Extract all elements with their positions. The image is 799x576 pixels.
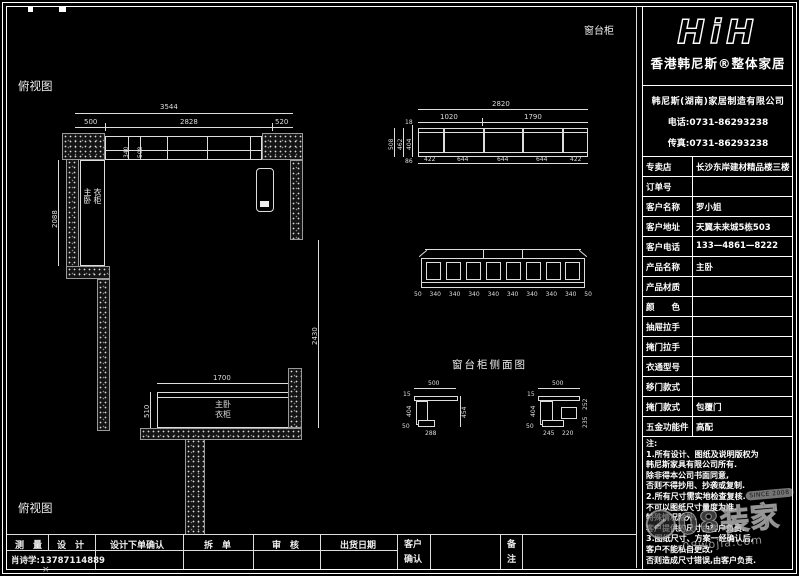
bb-header-design: 设 计: [57, 538, 84, 551]
plan-dim-line-overall: [75, 113, 293, 114]
front-door: [446, 262, 461, 280]
front-dim: 340: [546, 292, 557, 298]
front-cap-divider: [522, 249, 523, 258]
note-line: 除非得本公司书面同意,: [646, 471, 792, 482]
cabinet-divider: [167, 136, 168, 160]
row-value: [693, 337, 793, 356]
row-value: 罗小姐: [693, 197, 793, 216]
front-door: [546, 262, 561, 280]
plan-dim-bottom-w: 1700: [213, 375, 231, 382]
front-dim-row: 50 340 340 340 340 340 340 340 340 50: [414, 292, 592, 298]
note-line: 特殊情况除外.: [646, 513, 792, 524]
row-label: 五金功能件: [643, 417, 693, 436]
front-dim: 340: [565, 292, 576, 298]
row-label: 掩门拉手: [643, 337, 693, 356]
dim-tick: [272, 123, 273, 131]
row-value: [693, 357, 793, 376]
row-value: [693, 317, 793, 336]
wardrobe-bottom-label: 主卧: [215, 401, 231, 409]
plan-dim-mid: 2828: [180, 119, 198, 126]
wall-hatch: [288, 368, 302, 428]
hih-logo: HiH: [677, 12, 759, 51]
row-value: 包覆门: [693, 397, 793, 416]
table-row: 客户电话133—4861—8222: [643, 236, 793, 256]
note-line: 不可以图纸尺寸量度为准.: [646, 503, 792, 514]
dim-tick: [482, 118, 483, 126]
table-row: 掩门款式包覆门: [643, 396, 793, 416]
front-door: [426, 262, 441, 280]
company-phone: 电话:0731-86293238: [643, 107, 793, 128]
note-line: 2.所有尺寸需实地检查复核.: [646, 492, 792, 503]
elev-divider: [443, 128, 445, 153]
sideR-dim-line: [538, 388, 580, 389]
table-row: 衣通型号: [643, 356, 793, 376]
front-dim: 340: [449, 292, 460, 298]
sideR-dim-bottom-b: 220: [562, 431, 573, 437]
table-row: 颜 色: [643, 296, 793, 316]
row-label: 订单号: [643, 177, 693, 196]
row-label: 移门款式: [643, 377, 693, 396]
elev-dim-b4: 422: [570, 157, 581, 163]
bb-divider: [48, 534, 49, 550]
table-row: 五金功能件高配: [643, 416, 793, 436]
title-block: HiH 香港韩尼斯®整体家居 韩尼斯(湖南)家居制造有限公司 电话:0731-8…: [642, 6, 793, 570]
table-row: 专卖店长沙东岸建材精品楼三楼: [643, 156, 793, 176]
sideR-dim-right-b: 235: [583, 417, 589, 428]
wall-hatch: [62, 133, 105, 160]
bb-header-measure: 测 量: [15, 538, 42, 551]
elev-dim-b0: 422: [424, 157, 435, 163]
bb-divider: [253, 534, 254, 569]
bb-divider: [500, 534, 501, 569]
bb-header-audit: 审 核: [272, 538, 299, 551]
bb-header-order-confirm: 设计下单确认: [110, 538, 164, 551]
elev-dim-small-bottom: 86: [405, 159, 413, 165]
row-label: 颜 色: [643, 297, 693, 316]
plan-dim-right: 520: [275, 119, 288, 126]
plan-dim-left: 500: [84, 119, 97, 126]
table-row: 产品名称主卧: [643, 256, 793, 276]
front-door: [486, 262, 501, 280]
order-info-table: 专卖店长沙东岸建材精品楼三楼 订单号 客户名称罗小姐 客户地址天翼未来城5栋50…: [643, 156, 793, 436]
plan-wardrobe-left: [80, 160, 105, 266]
plan-column-mark: [260, 201, 269, 207]
sideL-dim-right: 454: [462, 407, 468, 418]
frame-zone-mark: [59, 6, 66, 12]
front-cap-divider: [483, 249, 484, 258]
row-label: 客户名称: [643, 197, 693, 216]
row-label: 衣通型号: [643, 357, 693, 376]
company-info: 韩尼斯(湖南)家居制造有限公司 电话:0731-86293238 传真:0731…: [643, 85, 793, 156]
plan-dim-wardrobe-h: 2088: [52, 210, 59, 228]
row-label: 产品材质: [643, 277, 693, 296]
logo-area: HiH 香港韩尼斯®整体家居: [643, 6, 793, 85]
row-value: 长沙东岸建材精品楼三楼: [693, 157, 793, 176]
bb-customer-confirm: 确认: [404, 552, 422, 565]
elev-dim-overall: 2820: [492, 101, 510, 108]
side-view-title: 窗台柜侧面图: [452, 357, 527, 372]
company-name: 韩尼斯(湖南)家居制造有限公司: [643, 86, 793, 107]
front-dim: 340: [468, 292, 479, 298]
row-value: 天翼未来城5栋503: [693, 217, 793, 236]
wardrobe-left-label: 衣柜: [93, 188, 101, 204]
sideR-dim-bottom-a: 245: [543, 431, 554, 437]
front-dim: 340: [526, 292, 537, 298]
bb-divider: [183, 534, 184, 569]
elev-dim-b1: 644: [457, 157, 468, 163]
note-line: 否则造成尺寸错误,由客户负责.: [646, 556, 792, 567]
cabinet-divider: [250, 136, 251, 160]
plan-view-title-top: 俯视图: [18, 78, 53, 94]
sideR-dim-right-a: 252: [583, 399, 589, 410]
front-plinth-line: [421, 282, 585, 283]
note-line: 客户不能私自更改,: [646, 545, 792, 556]
wardrobe-bottom-label: 衣柜: [215, 411, 231, 419]
note-line: 注:: [646, 439, 792, 450]
front-dim: 340: [507, 292, 518, 298]
elev-divider: [483, 128, 485, 153]
front-dim: 50: [584, 292, 592, 298]
note-line: 3.图纸尺寸、方案一经确认后,: [646, 534, 792, 545]
sideL-dim-left: 404: [407, 406, 413, 417]
elev-dim-line3: [418, 163, 588, 164]
plan-dim-band-a: 340: [124, 147, 130, 158]
wardrobe-left-label: 主卧: [83, 188, 91, 204]
bb-measure-value: 肖诗学:13787114889: [11, 554, 105, 566]
company-fax: 传真:0731-86293238: [643, 128, 793, 149]
table-row: 客户地址天翼未来城5栋503: [643, 216, 793, 236]
row-label: 客户地址: [643, 217, 693, 236]
bb-customer-confirm: 客户: [404, 537, 422, 550]
sideL-dim-corner: 15: [403, 392, 411, 398]
wall-hatch: [262, 133, 303, 160]
row-value: 主卧: [693, 257, 793, 276]
elev-dim-line: [418, 109, 588, 110]
bottombar-top-line: [7, 534, 636, 535]
bb-remark: 备: [507, 537, 516, 550]
plan-dim-bottom-d: 510: [144, 405, 151, 418]
row-value: [693, 297, 793, 316]
notes: 注: 1.所有设计、图纸及说明版权为 韩尼斯家具有限公司所有. 除非得本公司书面…: [643, 436, 793, 566]
sideR-dim-left-small: 50: [526, 424, 534, 430]
plan-dim-line-row2: [75, 127, 293, 128]
front-door: [565, 262, 580, 280]
elev-divider: [562, 128, 564, 153]
sideL-dim-bottom: 288: [425, 431, 436, 437]
table-row: 产品材质: [643, 276, 793, 296]
bb-remark: 注: [507, 552, 516, 565]
sideL-dim-top: 500: [428, 381, 439, 387]
window-cabinet-label: 窗台柜: [584, 22, 614, 37]
sideL-dim-left-small: 50: [402, 424, 410, 430]
bb-divider: [522, 534, 523, 569]
wall-hatch: [66, 159, 79, 273]
table-row: 移门款式: [643, 376, 793, 396]
front-dim: 50: [414, 292, 422, 298]
elev-dim-b2: 644: [497, 157, 508, 163]
row-value: [693, 377, 793, 396]
bb-header-split: 拆 单: [204, 538, 231, 551]
bb-divider: [397, 534, 398, 569]
frame-zone-mark: [28, 6, 33, 12]
table-row: 订单号: [643, 176, 793, 196]
plan-dim-line-bottom: [157, 383, 290, 384]
sideL-dim-line: [414, 388, 456, 389]
revision-mark: ×: [42, 565, 50, 575]
sideR-step: [561, 407, 577, 419]
plan-dim-overall: 3544: [160, 104, 178, 111]
sideR-dim-top: 500: [552, 381, 563, 387]
table-row: 掩门拉手: [643, 336, 793, 356]
front-door: [466, 262, 481, 280]
wall-hatch: [66, 266, 110, 279]
sideL-foot: [418, 420, 435, 427]
note-line: 否则不得抄用、抄袭或复制.: [646, 481, 792, 492]
sideR-dim-left: 404: [531, 406, 537, 417]
plan-dim-right-side: 2430: [312, 327, 319, 345]
row-value: [693, 277, 793, 296]
cabinet-front-line: [157, 397, 290, 398]
bb-divider: [320, 534, 321, 569]
titleblock-divider-line: [636, 6, 637, 568]
plan-dim-band-b: 508: [138, 147, 144, 158]
row-label: 产品名称: [643, 257, 693, 276]
elev-dim-l2: 404: [407, 139, 413, 150]
table-row: 客户名称罗小姐: [643, 196, 793, 216]
front-door: [506, 262, 521, 280]
elev-dim-line2: [418, 122, 588, 123]
note-line: 韩尼斯家具有限公司所有.: [646, 460, 792, 471]
front-cap-top: [425, 249, 581, 250]
bb-divider: [430, 534, 431, 569]
elev-dim-l1: 462: [398, 139, 404, 150]
row-label: 专卖店: [643, 157, 693, 176]
cad-sheet: { "drawing": { "labels": { "plan_top": "…: [0, 0, 799, 576]
sideR-dim-corner: 15: [527, 392, 535, 398]
front-door: [526, 262, 541, 280]
note-line: 1.所有设计、图纸及说明版权为: [646, 450, 792, 461]
row-value: [693, 177, 793, 196]
dim-tick: [105, 123, 106, 131]
row-label: 抽屉拉手: [643, 317, 693, 336]
brand-name: 香港韩尼斯®整体家居: [643, 53, 793, 72]
front-dim: 340: [430, 292, 441, 298]
row-label: 掩门款式: [643, 397, 693, 416]
elev-dim-b3: 644: [536, 157, 547, 163]
sideR-foot: [542, 420, 564, 427]
wall-hatch: [185, 438, 205, 535]
bb-header-ship-date: 出货日期: [340, 538, 376, 551]
elev-divider: [522, 128, 524, 153]
plan-view-title-bottom: 俯视图: [18, 500, 53, 516]
elev-dim-small-top: 18: [405, 120, 413, 126]
wall-hatch: [140, 428, 302, 440]
front-dim: 340: [488, 292, 499, 298]
note-line: 客户提供的尺寸由客户负责.: [646, 524, 792, 535]
row-value: 高配: [693, 417, 793, 436]
wall-hatch: [97, 279, 110, 431]
wall-hatch: [290, 160, 303, 240]
row-label: 客户电话: [643, 237, 693, 256]
elev-dim-seg2: 1790: [524, 114, 542, 121]
cabinet-divider: [207, 136, 208, 160]
row-value: 133—4861—8222: [693, 237, 793, 256]
table-row: 抽屉拉手: [643, 316, 793, 336]
elev-dim-l0: 508: [389, 139, 395, 150]
elev-dim-seg1: 1020: [440, 114, 458, 121]
